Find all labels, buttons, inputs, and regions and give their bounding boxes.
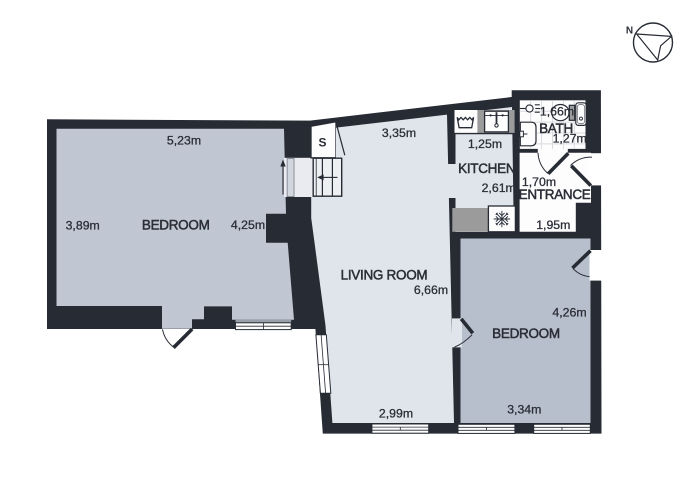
svg-text:2,61m: 2,61m — [482, 181, 516, 195]
svg-text:ENTRANCE: ENTRANCE — [519, 187, 591, 202]
svg-text:3,89m: 3,89m — [66, 219, 100, 233]
svg-text:3,35m: 3,35m — [382, 126, 416, 140]
svg-text:2,99m: 2,99m — [379, 406, 413, 420]
svg-text:BEDROOM: BEDROOM — [142, 217, 210, 232]
svg-text:1,95m: 1,95m — [536, 218, 570, 232]
svg-text:5,23m: 5,23m — [167, 134, 201, 148]
svg-text:N: N — [626, 26, 633, 37]
svg-text:6,66m: 6,66m — [414, 283, 448, 297]
svg-text:1,66m: 1,66m — [540, 105, 574, 119]
svg-text:4,26m: 4,26m — [552, 306, 586, 320]
svg-text:BEDROOM: BEDROOM — [492, 326, 560, 341]
svg-text:1,27m: 1,27m — [553, 132, 587, 146]
svg-text:1,25m: 1,25m — [468, 137, 502, 151]
svg-text:3,34m: 3,34m — [507, 403, 541, 417]
svg-text:KITCHEN: KITCHEN — [458, 161, 515, 176]
svg-text:S: S — [318, 136, 326, 150]
svg-text:4,25m: 4,25m — [231, 218, 265, 232]
svg-text:LIVING ROOM: LIVING ROOM — [341, 268, 428, 283]
